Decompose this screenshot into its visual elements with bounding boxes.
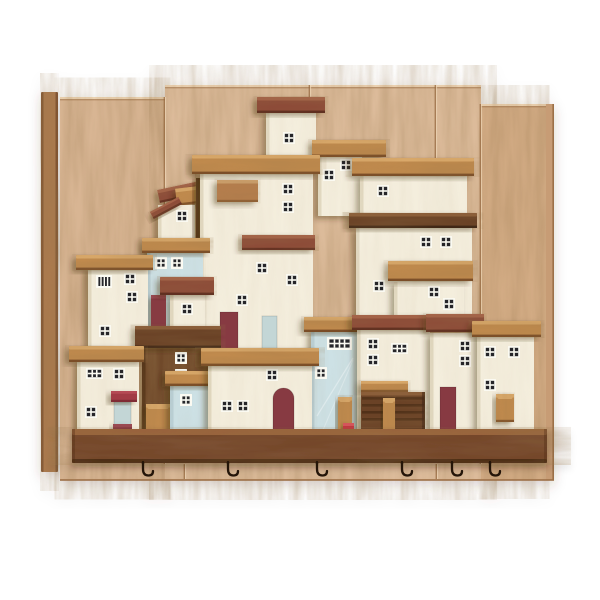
wood-grain-texture <box>160 277 214 295</box>
wood-grain-texture <box>242 235 315 250</box>
wood-grain-texture <box>472 321 541 337</box>
house-window <box>266 369 278 381</box>
wood-grain-texture <box>257 97 325 113</box>
house-window <box>443 298 455 310</box>
house-window <box>236 294 248 306</box>
wood-grain-texture <box>312 140 386 157</box>
door <box>220 312 238 349</box>
wood-grain-texture <box>41 92 58 472</box>
house-window <box>367 354 379 366</box>
wood-grain-texture <box>349 213 477 228</box>
house-window <box>508 346 520 358</box>
house-window <box>124 273 136 285</box>
roof-walnut <box>135 326 221 348</box>
house-window <box>283 132 295 144</box>
roof-oak <box>69 346 144 362</box>
wood-oakpeg <box>496 394 514 422</box>
plank-seam <box>435 85 436 160</box>
wood-grain-texture <box>360 175 467 217</box>
wood-oak <box>361 381 408 392</box>
wood-mahogany <box>242 235 315 250</box>
barn-door-house <box>352 315 433 433</box>
left-rail <box>41 92 58 472</box>
house-window <box>86 368 103 379</box>
house-window <box>175 352 187 364</box>
house-window <box>221 400 233 412</box>
roof-oak <box>472 321 541 337</box>
wood-grain-texture <box>208 364 312 433</box>
house-window <box>377 185 389 197</box>
wood-grain-texture <box>201 348 319 366</box>
roof-oak <box>142 238 210 253</box>
wood-grain-texture <box>496 394 514 422</box>
house-window <box>420 236 432 248</box>
house-window <box>282 183 294 195</box>
wood-grain-texture <box>69 346 144 362</box>
house-window <box>428 286 440 298</box>
artwork-svg <box>0 0 600 600</box>
plank-seam <box>436 464 437 479</box>
house-window <box>282 201 294 213</box>
house-window <box>440 236 452 248</box>
house-window <box>96 275 112 288</box>
wood-grain-texture <box>361 381 408 392</box>
house-window <box>286 274 298 286</box>
wood-grain-texture <box>383 398 395 432</box>
roof-walnut <box>349 213 477 228</box>
house-window <box>340 159 352 171</box>
house-window <box>373 280 385 292</box>
wood-grain-texture <box>142 238 210 253</box>
roof-mahogany <box>352 315 433 330</box>
roof-oak <box>201 348 319 366</box>
blue-center-house <box>304 317 363 433</box>
wood-grain-texture <box>135 326 221 348</box>
house-window <box>126 291 138 303</box>
arched-door <box>273 388 294 433</box>
door <box>262 316 277 349</box>
roof-oak <box>352 158 474 176</box>
house-window <box>176 210 188 222</box>
house-window <box>459 355 471 367</box>
roof-mahogany <box>160 277 214 295</box>
panel-bottom-edge <box>60 479 554 481</box>
house-window <box>113 368 125 380</box>
roof-oak <box>388 261 473 281</box>
house-window <box>484 346 496 358</box>
product-photo <box>0 0 600 600</box>
wood-oaksign <box>217 180 258 202</box>
roof-oak <box>312 140 386 157</box>
arch-door-house <box>201 348 319 433</box>
wood-redsign <box>111 391 137 402</box>
plank-seam <box>184 464 185 479</box>
shelf-group <box>72 429 547 463</box>
wood-grain-texture <box>352 315 433 330</box>
roof-mahogany <box>257 97 325 113</box>
right-outer-house <box>472 321 541 431</box>
house-window <box>391 343 408 354</box>
house-window <box>484 379 496 391</box>
house-window <box>181 303 193 315</box>
house-window <box>155 257 167 269</box>
house-window <box>315 367 327 379</box>
front-left-house <box>69 346 144 437</box>
roof-oak <box>192 155 320 174</box>
wood-grain-texture <box>192 155 320 174</box>
shelf-board <box>72 429 547 463</box>
house-window <box>237 400 249 412</box>
tall-center-house <box>192 155 320 350</box>
house-window <box>99 325 111 337</box>
house-window <box>327 337 352 350</box>
house-window <box>180 394 192 406</box>
wood-grain-texture <box>72 429 547 463</box>
house-window <box>367 338 379 350</box>
wood-grain-texture <box>352 158 474 176</box>
wide-upper-right-house <box>352 158 474 217</box>
wood-grain-texture <box>388 261 473 281</box>
door <box>440 387 456 431</box>
mahogany-roof-cottage <box>151 277 214 332</box>
roof-oak <box>76 255 153 270</box>
house-window <box>256 262 268 274</box>
wood-grain-texture <box>217 180 258 202</box>
wood-grain-texture <box>76 255 153 270</box>
house-window <box>85 406 97 418</box>
house-window <box>171 257 183 269</box>
wood-oakpeg <box>383 398 395 432</box>
house-window <box>323 169 335 181</box>
house-window <box>459 340 471 352</box>
